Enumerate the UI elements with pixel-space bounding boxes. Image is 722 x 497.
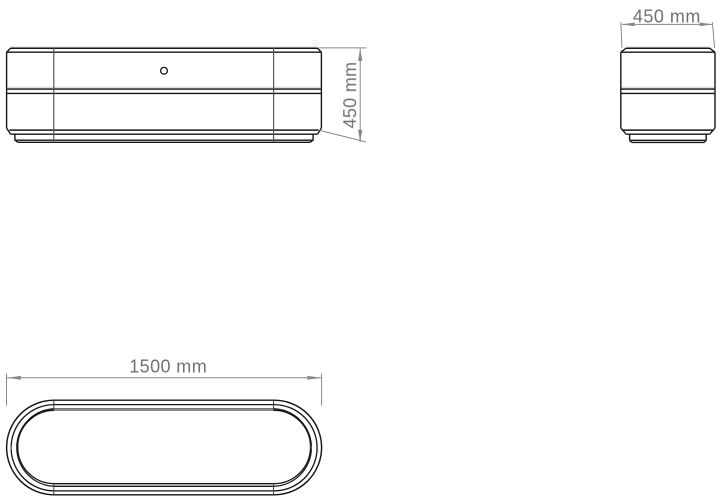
- svg-text:450 mm: 450 mm: [340, 62, 360, 129]
- svg-text:1500 mm: 1500 mm: [129, 357, 207, 377]
- svg-text:450 mm: 450 mm: [633, 6, 701, 26]
